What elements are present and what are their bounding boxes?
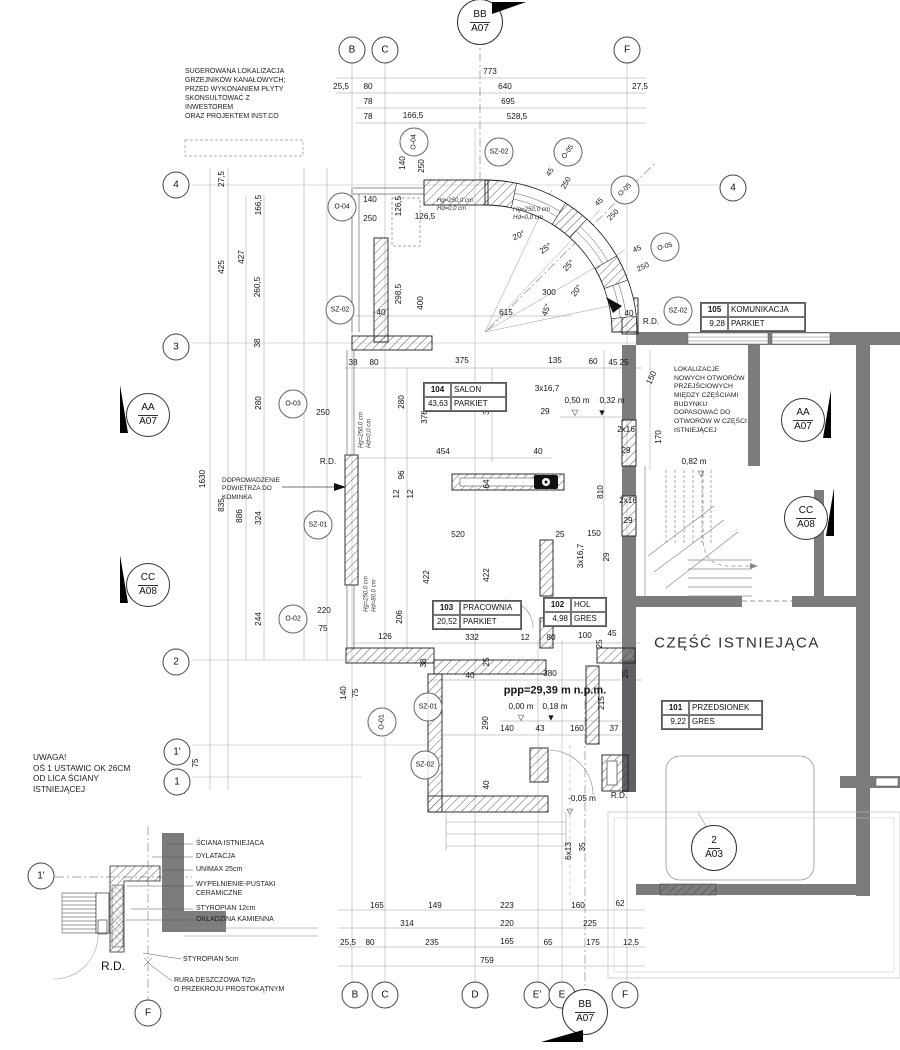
detail-label: OKŁADZINA KAMIENNA (196, 916, 274, 925)
window-params: Hg=250,0 cm Hd=80,0 cm (363, 576, 378, 612)
dim-label: 43 (535, 725, 544, 733)
dim-label: 45 (608, 359, 617, 367)
section-id: CC (138, 572, 158, 586)
dim-label: 25 (555, 531, 564, 539)
dim-label: 165 (500, 938, 514, 946)
room-name: SALON (451, 383, 506, 397)
dim-label: 12 (407, 489, 415, 498)
dim-label: 160 (570, 725, 584, 733)
room-fin: PARKIET (460, 615, 521, 629)
dim-label: 29 (603, 552, 611, 561)
room-fin: PARKIET (728, 317, 805, 331)
dim-label: 0,00 m (508, 703, 533, 711)
staircase (645, 466, 758, 596)
grid-bubble-4: 4 (720, 175, 747, 202)
dim-label: 29 (540, 408, 549, 416)
roof-drain-label: R.D. (643, 318, 659, 326)
dim-label: 0,18 m (542, 703, 567, 711)
dim-label: 64 (483, 479, 491, 488)
room-name: PRACOWNIA (460, 601, 521, 615)
dim-label: 78 (363, 98, 372, 106)
note-new-openings: LOKALIZACJE NOWYCH OTWORÓW PRZEJŚCIOWYCH… (674, 366, 747, 436)
dim-label: 126,5 (395, 196, 403, 217)
dim-label: 220 (317, 607, 331, 615)
dim-label: 140 (500, 725, 514, 733)
dim-label: 165 (370, 902, 384, 910)
opening-tag-sz-02: SZ-02 (485, 138, 514, 167)
dim-label: 280 (255, 396, 263, 410)
dim-label: ppp=29,39 m n.p.m. (504, 686, 606, 697)
grid-bubble-b: B (339, 37, 366, 64)
detail-label: UNIMAX 25cm (196, 866, 242, 875)
opening-tag-o-01: O-01 (368, 708, 397, 737)
detail-label: WYPEŁNIENIE-PUSTAKI CERAMICZNE (196, 881, 276, 899)
sheet-ref: A08 (139, 586, 157, 599)
dim-label: 0,50 m (564, 397, 589, 405)
section-marker-aa: AAA07 (126, 393, 170, 437)
section-id: AA (793, 407, 812, 421)
dim-label: 40 (624, 310, 633, 318)
room-area: 20,52 (433, 615, 460, 629)
dim-label: 96 (398, 470, 406, 479)
dim-label: 324 (255, 511, 263, 525)
dim-label: 695 (501, 98, 515, 106)
dim-label: 140 (340, 686, 348, 700)
dim-label: 149 (428, 902, 442, 910)
dim-label: 380 (543, 670, 557, 678)
dim-label: 38 (420, 658, 428, 667)
dim-label: 40 (483, 780, 491, 789)
roof-drain-label: R.D. (101, 960, 125, 972)
note-axis-warning: UWAGA! OŚ 1 USTAWIC OK 26CM OD LICA ŚCIA… (33, 752, 130, 794)
floor-plan-sheet: 77325,58064027,57869578166,5528,527,5166… (0, 0, 900, 1050)
dim-label: 40 (465, 672, 474, 680)
dim-label: ▼ (598, 409, 607, 418)
room-area: 9,28 (701, 317, 728, 331)
dim-label: 3x16,7 (577, 544, 585, 569)
dim-label: 80 (546, 634, 555, 642)
dim-label: 206 (396, 610, 404, 624)
room-num: 103 (433, 601, 460, 615)
opening-tag-o-02: O-02 (279, 605, 308, 634)
roof-drain-label: R.D. (320, 458, 336, 466)
dim-label: ▽ (572, 409, 578, 417)
dim-label: 375 (455, 357, 469, 365)
room-area: 43,63 (424, 397, 451, 411)
section-marker-bb: BBA07 (562, 989, 608, 1035)
opening-tag-sz-01: SZ-01 (304, 511, 333, 540)
dim-label: 332 (465, 634, 479, 642)
section-id: BB (575, 999, 594, 1013)
dim-label: 615 (499, 309, 513, 317)
dim-label: 454 (436, 448, 450, 456)
dim-label: 400 (417, 296, 425, 310)
room-num: 101 (662, 701, 689, 715)
room-label-104: 104SALON43,63PARKIET (423, 382, 507, 412)
dim-label: 160 (571, 902, 585, 910)
dim-label: ▽ (567, 808, 573, 816)
dim-label: 140 (363, 196, 377, 204)
sheet-ref: A07 (576, 1013, 594, 1026)
dim-label: 38 (348, 359, 357, 367)
opening-tag-sz-02: SZ-02 (411, 751, 440, 780)
sheet-ref: A08 (797, 519, 815, 532)
dim-label: -0,05 m (568, 795, 596, 803)
note-fireplace-air: DOPROWADZENIE POWIETRZA DO KOMINKA (222, 477, 280, 502)
dim-label: 314 (400, 920, 414, 928)
dim-label: 225 (583, 920, 597, 928)
sheet-ref: A03 (705, 849, 723, 862)
section-id: AA (138, 402, 157, 416)
dim-label: 78 (363, 113, 372, 121)
dim-label: 220 (500, 920, 514, 928)
detail-label: STYROPIAN 12cm (196, 905, 256, 914)
sheet-ref: A07 (471, 23, 489, 36)
dim-label: 376 (421, 410, 429, 424)
section-marker-aa: AAA07 (781, 398, 825, 442)
room-label-103: 103PRACOWNIA20,52PARKIET (432, 600, 522, 630)
dim-label: 12,5 (623, 939, 639, 947)
dim-label: 422 (423, 570, 431, 584)
window-params: Hg=250,0 cm Hd=0,0 cm (437, 198, 473, 213)
grid-bubble-f: F (135, 1000, 162, 1027)
room-num: 102 (544, 598, 571, 612)
dim-label: 640 (498, 83, 512, 91)
dim-label: 12 (520, 634, 529, 642)
room-fin: PARKIET (451, 397, 506, 411)
section-marker-cc: CCA08 (126, 563, 170, 607)
room-num: 104 (424, 383, 451, 397)
room-name: KOMUNIKACJA (728, 303, 805, 317)
dim-label: 425 (218, 260, 226, 274)
dim-label: 60 (588, 358, 597, 366)
dim-label: 25,5 (333, 83, 349, 91)
room-num: 105 (701, 303, 728, 317)
opening-tag-sz-02: SZ-02 (664, 297, 693, 326)
dim-label: 2x16 (619, 497, 637, 505)
dim-label: 223 (500, 902, 514, 910)
section-id: CC (796, 505, 816, 519)
dim-label: 298,5 (395, 284, 403, 305)
dim-label: 29 (621, 447, 630, 455)
sheet-ref: A07 (139, 416, 157, 429)
dim-label: 170 (655, 430, 663, 444)
dim-label: 40 (376, 309, 385, 317)
room-fin: GRES (571, 612, 606, 626)
dim-label: 100 (578, 632, 592, 640)
dim-label: 25 (619, 359, 628, 367)
dim-label: 126 (378, 633, 392, 641)
sheet-ref: A07 (794, 421, 812, 434)
room-area: 9,22 (662, 715, 689, 729)
dim-label: 25,5 (340, 939, 356, 947)
dim-label: 528,5 (507, 113, 528, 121)
dim-label: ▽ (698, 470, 704, 478)
grid-bubble-4: 4 (163, 172, 190, 199)
section-id: 2 (708, 835, 720, 849)
opening-tag-sz-01: SZ-01 (414, 693, 443, 722)
dim-label: 150 (587, 530, 601, 538)
grid-bubble-f: F (612, 982, 639, 1009)
floor-plan-linework (0, 0, 900, 1050)
dim-label: 25 (483, 657, 491, 666)
detail-label: ŚCIANA ISTNIEJĄCA (196, 840, 264, 849)
grid-bubble-1': 1' (28, 863, 55, 890)
dim-label: 260,5 (254, 277, 262, 298)
grid-bubble-e': E' (524, 982, 551, 1009)
existing-walls (622, 332, 900, 896)
dim-label: 759 (480, 957, 494, 965)
detail-label: RURA DESZCZOWA TiZn O PRZEKROJU PROSTOKĄ… (174, 977, 284, 995)
grid-bubble-1: 1 (164, 769, 191, 796)
dim-label: 75 (352, 688, 360, 697)
dim-label: 810 (597, 485, 605, 499)
dim-label: 773 (483, 68, 497, 76)
dim-label: 290 (482, 716, 490, 730)
dim-label: 62 (615, 900, 624, 908)
opening-tag-o-03: O-03 (279, 390, 308, 419)
opening-tag-o-04: O-04 (328, 193, 357, 222)
room-area: 4,98 (544, 612, 571, 626)
detail-label: STYROPIAN 5cm (183, 956, 239, 965)
dim-label: 80 (369, 359, 378, 367)
dim-label: 0,32 m (599, 397, 624, 405)
dim-label: 29 (623, 517, 632, 525)
dim-label: 215 (598, 696, 606, 710)
grid-bubble-d: D (462, 982, 489, 1009)
opening-tag-o-04: O-04 (400, 128, 429, 157)
dim-label: 35 (579, 842, 587, 851)
dim-label: 75 (318, 625, 327, 633)
dim-label: 422 (483, 568, 491, 582)
grid-bubble-c: C (372, 37, 399, 64)
dim-label: 166,5 (255, 195, 263, 216)
dim-label: 135 (548, 357, 562, 365)
dim-label: 1630 (199, 470, 207, 488)
dim-label: 166,5 (403, 112, 424, 120)
dim-label: 235 (425, 939, 439, 947)
grid-bubble-2: 2 (163, 649, 190, 676)
section-id: BB (470, 9, 489, 23)
dim-label: 37 (609, 725, 618, 733)
dim-label: 75 (192, 758, 200, 767)
dim-label: 27,5 (218, 171, 226, 187)
existing-part-label: CZĘŚĆ ISTNIEJĄCA (654, 636, 820, 651)
dim-label: 244 (255, 612, 263, 626)
window-params: Hg=250,0 cm Hd=0,0 cm (358, 412, 373, 448)
dim-label: 520 (451, 531, 465, 539)
room-name: HOL (571, 598, 606, 612)
dim-label: 80 (365, 939, 374, 947)
grid-bubble-f: F (614, 37, 641, 64)
detail-label: DYLATACJA (196, 853, 235, 862)
roof-drain-label: R.D. (611, 792, 627, 800)
dim-label: 886 (236, 509, 244, 523)
dim-label: 25 (596, 639, 604, 648)
dim-label: 40 (533, 448, 542, 456)
dim-label: 65 (543, 939, 552, 947)
dim-label: 175 (586, 939, 600, 947)
section-marker-2: 2A03 (691, 825, 737, 871)
grid-bubble-b: B (342, 982, 369, 1009)
dim-label: 0,82 m (681, 458, 706, 466)
grid-bubble-3: 3 (163, 334, 190, 361)
dim-label: 126,5 (415, 213, 436, 221)
room-name: PRZEDSIONEK (689, 701, 762, 715)
dim-label: 27,5 (632, 83, 648, 91)
dim-label: 38 (254, 338, 262, 347)
room-fin: GRES (689, 715, 762, 729)
dim-label: 80 (363, 83, 372, 91)
room-label-105: 105KOMUNIKACJA9,28PARKIET (700, 302, 806, 332)
room-label-101: 101PRZEDSIONEK9,22GRES (661, 700, 763, 730)
dim-label: 140 (399, 156, 407, 170)
dim-label: 427 (238, 250, 246, 264)
dim-label: 2x16 (617, 426, 635, 434)
section-marker-cc: CCA08 (784, 496, 828, 540)
dim-label: 12 (393, 489, 401, 498)
dim-label: 25 (622, 669, 630, 678)
grid-bubble-c: C (372, 982, 399, 1009)
grid-bubble-1': 1' (164, 739, 191, 766)
dim-label: ▽ (518, 714, 524, 722)
dim-label: ▼ (547, 714, 556, 723)
dim-label: 6x13 (565, 842, 573, 860)
note-suggested-heaters: SUGEROWANA LOKALIZACJA GRZEJNIKÓW KANAŁO… (185, 68, 285, 122)
dim-label: 300 (542, 289, 556, 297)
dim-label: 3x16,7 (535, 385, 560, 393)
room-label-102: 102HOL4,98GRES (543, 597, 607, 627)
dim-label: 250 (316, 409, 330, 417)
dim-label: 280 (398, 395, 406, 409)
window-params: Hg=250,0 cm Hd=0,0 cm (513, 206, 550, 222)
dim-label: 45 (607, 630, 616, 638)
dim-label: 250 (363, 215, 377, 223)
dim-label: 250 (418, 159, 426, 173)
opening-tag-sz-02: SZ-02 (326, 296, 355, 325)
